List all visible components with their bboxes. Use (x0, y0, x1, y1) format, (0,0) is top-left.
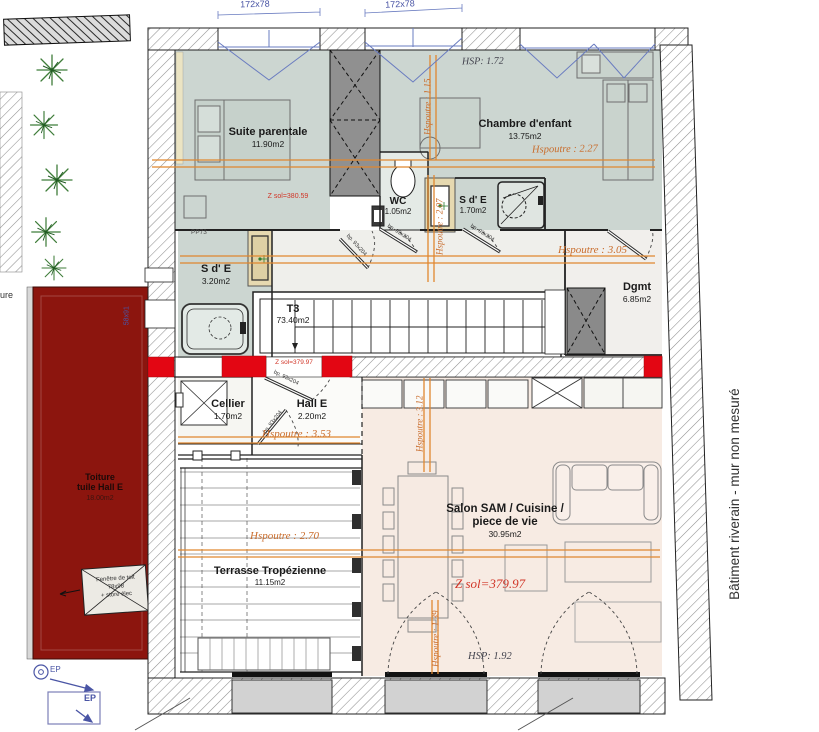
site-elements (0, 15, 130, 280)
zsol-palier: Z sol=379.97 (254, 360, 334, 367)
room-chambre-name: Chambre d'enfant (420, 119, 630, 131)
room-sde-suite-area: 3.20m2 (166, 277, 266, 286)
room-sde-chambre-area: 1.70m2 (443, 207, 503, 215)
hspoutre-palier: Hspoutre : 3.05 (558, 245, 627, 257)
tag-pp73: PP73 (191, 230, 207, 237)
shower (498, 182, 544, 228)
room-terrasse-name: Terrasse Tropézienne (180, 566, 360, 578)
roof-window-label: Fenêtre de toit 78x98 + store élec (83, 573, 149, 601)
room-salon-name1: Salon SAM / Cuisine / (400, 503, 610, 515)
room-wc-name: WC (374, 197, 422, 208)
ep-circle-label: EP (50, 666, 61, 674)
room-t3-name: T3 (258, 304, 328, 316)
hspoutre-chambre-vertical: Hspoutre : 1.15 (423, 52, 432, 162)
room-terrasse-area: 11.15m2 (180, 579, 360, 587)
room-sde-suite-name: S d' E (166, 264, 266, 276)
hspoutre-hall: Hspoutre : 3.53 (262, 429, 331, 441)
stair (253, 292, 561, 360)
room-wc-area: 1.05m2 (374, 208, 422, 216)
zsol-suite: Z sol=380.59 (243, 193, 333, 200)
roof-name2: tuile Hall E (55, 483, 145, 492)
hspoutre-terrasse: Hspoutre : 2.70 (250, 531, 319, 543)
hsp-salon: HSP: 1.92 (468, 651, 512, 662)
room-sde-chambre-name: S d' E (443, 196, 503, 207)
room-hall-name: Hall E (272, 399, 352, 411)
bathtub (182, 304, 248, 354)
room-t3-area: 73.40m2 (258, 316, 328, 325)
room-suite-area: 11.90m2 (193, 140, 343, 149)
room-salon-area: 30.95m2 (400, 530, 610, 539)
room-suite-name: Suite parentale (193, 127, 343, 139)
hspoutre-sde-vertical: Hspoutre : 2.07 (435, 172, 444, 282)
room-hall-area: 2.20m2 (272, 412, 352, 421)
roof-area: 18.00m2 (55, 495, 145, 502)
roof-tag: 58x91 (123, 296, 130, 336)
ep-box-label: EP (84, 694, 96, 703)
plan-linework (0, 0, 819, 732)
pillar-center (330, 50, 380, 196)
room-dgmt-area: 6.85m2 (592, 295, 682, 304)
hspoutre-salon2-vertical: Hspoutre : 1.39 (431, 584, 440, 694)
room-chambre-area: 13.75m2 (420, 132, 630, 141)
left-edge-text: ure (0, 291, 13, 300)
hsp-chambre: HSP: 1.72 (462, 57, 504, 68)
zsol-salon: Z sol=379.97 (455, 577, 525, 591)
floor-plan: 172x78 172x78 HSP: 1.72 Hspoutre : 1.15 … (0, 0, 819, 732)
gallery-panels (362, 378, 662, 408)
room-cellier-area: 1.70m2 (188, 412, 268, 421)
neighbour-note: Bâtiment riverain - mur non mesuré (728, 334, 742, 654)
room-dgmt-name: Dgmt (592, 282, 682, 294)
hspoutre-chambre2: Hspoutre : 2.27 (532, 143, 598, 155)
hspoutre-salon-vertical: Hspoutre : 3.12 (415, 369, 424, 479)
room-salon-name2: piece de vie (400, 516, 610, 528)
room-cellier-name: Cellier (188, 399, 268, 411)
